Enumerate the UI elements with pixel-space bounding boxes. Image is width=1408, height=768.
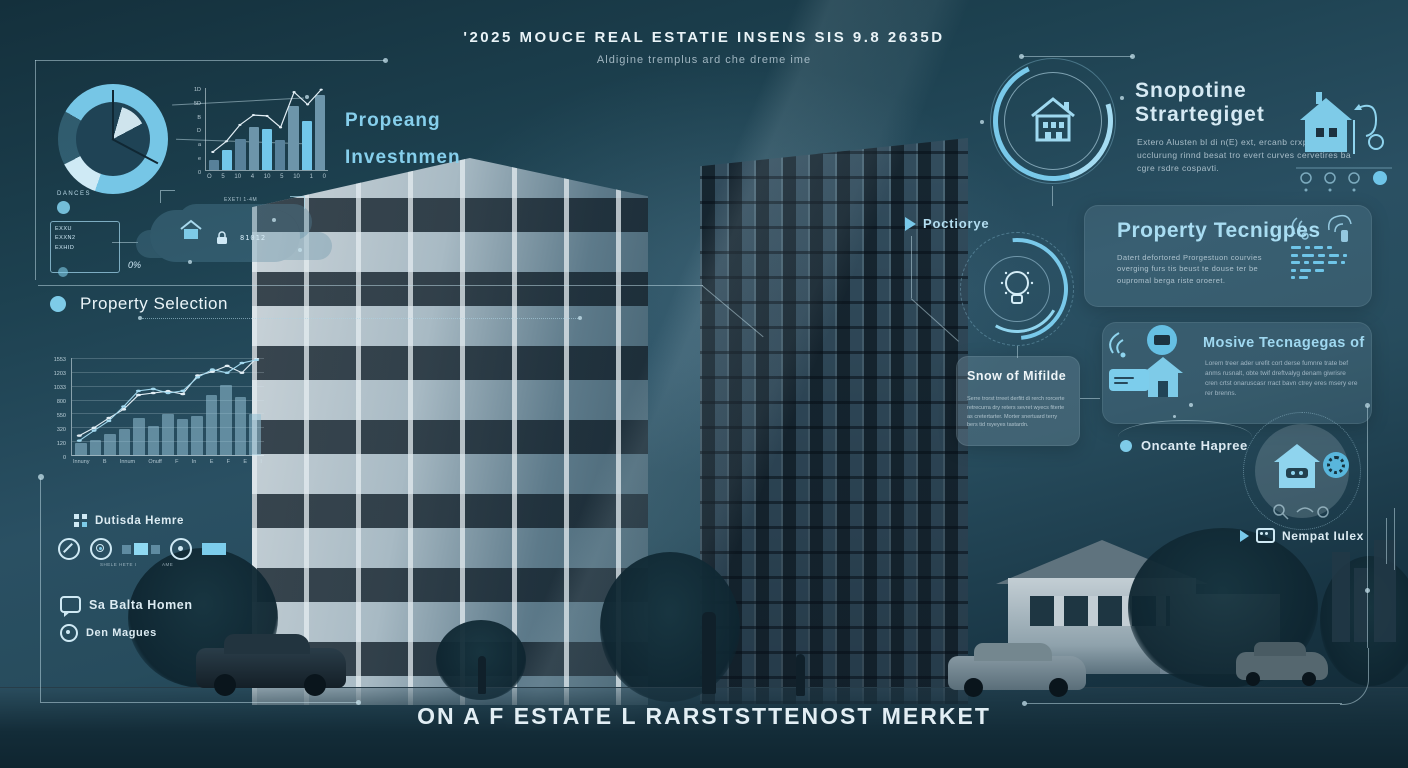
bullet-dot	[50, 296, 66, 312]
lock-icon	[214, 230, 230, 246]
poctiorye-item: Poctiorye	[905, 216, 989, 231]
legend-outside-home: Dutisda Hemre	[74, 514, 184, 527]
y-tick-label: 1033	[46, 386, 66, 392]
x-tick-label: Innuny	[73, 459, 90, 465]
message-card-icon	[1109, 369, 1149, 391]
dot	[1173, 415, 1176, 418]
smart-cloud-diagram: EXETI 1-4M 81012	[122, 190, 337, 282]
dot	[980, 120, 984, 124]
pedestrian	[796, 654, 805, 696]
icon-caption: AME	[162, 562, 173, 567]
grid-icon	[74, 514, 87, 527]
investment-label-line2: Investnmen	[345, 147, 461, 169]
megaphone-icon	[1147, 325, 1177, 355]
x-tick-label: In	[192, 459, 197, 465]
dash	[1291, 276, 1295, 279]
property-techniques-panel: Property Tecnigpes Datert defortored Pro…	[1084, 205, 1372, 307]
compass-icon	[58, 538, 80, 560]
dash	[1291, 261, 1300, 264]
y-axis-ticks: 1D5DBDae0	[188, 88, 202, 192]
y-tick-label: e	[188, 157, 201, 163]
x-tick-label: I	[260, 459, 262, 465]
market-trend-chart: 1553120310338005503201200InnunyBInnumOnu…	[46, 358, 264, 480]
y-tick-label: 1203	[46, 372, 66, 378]
digital-readout: 81012	[240, 234, 266, 242]
bracket-corner	[160, 190, 175, 203]
poctiorye-label: Poctiorye	[923, 216, 989, 231]
dash	[1305, 246, 1310, 249]
property-selection-label: Property Selection	[80, 294, 228, 314]
y-tick-label: 1553	[46, 358, 66, 364]
nempati-item: Nempat Iulex	[1240, 528, 1364, 543]
plot-area	[71, 358, 264, 456]
dash	[1291, 246, 1301, 249]
play-icon	[905, 217, 916, 231]
morse-row	[1291, 276, 1347, 279]
frame-line	[1367, 406, 1368, 648]
y-tick-label: 320	[46, 428, 66, 434]
x-tick-label: 10	[234, 174, 241, 180]
dot	[1189, 403, 1193, 407]
mosive-panel: Mosive Tecnagegas of Lorem treer ader ur…	[1102, 322, 1372, 424]
panel-body: Datert defortored Prorgestuon courvies o…	[1117, 252, 1285, 286]
morse-row	[1291, 261, 1347, 264]
panel-heading: Snow of Mifilde	[967, 369, 1066, 383]
x-tick-label: B	[103, 459, 107, 465]
legend-label: Den Magues	[86, 627, 157, 639]
oncante-label: Oncante Hapree	[1141, 438, 1248, 453]
strategy-heading-line2: Strartegiget	[1135, 103, 1265, 127]
dash	[1315, 269, 1324, 272]
x-tick-label: Innum	[120, 459, 135, 465]
legend-label: Sa Balta Homen	[89, 598, 193, 612]
dash	[1328, 261, 1337, 264]
connector-line	[911, 236, 912, 298]
morse-dashes	[1291, 246, 1347, 284]
y-tick-label: 0	[46, 456, 66, 462]
target-icon	[60, 624, 78, 642]
house-icon	[178, 218, 204, 242]
car-gray	[948, 656, 1086, 690]
antenna-icon	[1285, 212, 1357, 246]
section-divider	[38, 285, 703, 286]
morse-row	[1291, 246, 1347, 249]
donut-axis-line	[112, 90, 114, 140]
pedestrian	[478, 656, 486, 694]
connector-line	[1052, 186, 1053, 206]
lightbulb-icon	[1000, 268, 1034, 310]
y-tick-label: 5D	[188, 102, 201, 108]
page-subtitle: Aldigine tremplus ard che dreme ime	[0, 54, 1408, 66]
node-dot	[58, 267, 68, 277]
dot	[272, 218, 276, 222]
city-silhouette	[1332, 552, 1350, 642]
panel-body: Serre trorst trreet derfitt di rerch ror…	[967, 395, 1069, 430]
car-small	[1236, 652, 1328, 680]
y-tick-label: B	[188, 116, 201, 122]
dash	[1329, 254, 1339, 257]
dash	[1314, 246, 1323, 249]
dash	[1302, 254, 1314, 257]
chat-bubble-icon	[1256, 528, 1275, 543]
frame-line	[35, 60, 36, 280]
bulb-ring-badge	[960, 232, 1074, 346]
x-tick-label: 4	[251, 174, 254, 180]
screen-tiles-icon	[122, 543, 160, 555]
dash	[1304, 261, 1309, 264]
x-tick-label: F	[227, 459, 230, 465]
x-tick-label: E	[243, 459, 247, 465]
dot	[188, 260, 192, 264]
house-refresh-icon	[1292, 84, 1396, 196]
y-tick-label: D	[188, 129, 201, 135]
doodle-icons	[1269, 500, 1333, 524]
dot	[578, 316, 582, 320]
tree	[600, 552, 740, 702]
city-silhouette	[1354, 568, 1368, 642]
dash	[1313, 261, 1324, 264]
bottom-title: ON A F ESTATE L RARSTSTTENOST MERKET	[0, 703, 1408, 730]
chat-bubble-icon	[60, 596, 81, 613]
davos-label: DANCES	[57, 191, 91, 197]
node-dot	[57, 201, 70, 214]
allocation-donut-chart	[58, 84, 168, 194]
icon-caption: SHELE HETE I	[100, 562, 137, 567]
frame-line	[40, 478, 41, 702]
dot	[38, 474, 44, 480]
bracket-corner	[290, 196, 305, 209]
smart-device-icon-row	[58, 538, 226, 560]
dot	[1120, 96, 1124, 100]
panel-tile-icon	[202, 543, 226, 555]
code-line: EXXN2	[55, 234, 115, 243]
mini-bar-chart: 1D5DBDae0O51041051010	[188, 88, 328, 192]
x-tick-label: E	[210, 459, 214, 465]
dash	[1291, 269, 1296, 272]
y-tick-label: 550	[46, 414, 66, 420]
morse-row	[1291, 254, 1347, 257]
code-line: EXXU	[55, 225, 115, 234]
dash	[1318, 254, 1325, 257]
bullet-dot	[1120, 440, 1132, 452]
y-tick-label: 1D	[188, 88, 201, 94]
car-dark	[196, 648, 346, 688]
frame-line	[1394, 508, 1395, 570]
x-tick-label: O	[207, 174, 212, 180]
legend-label: Dutisda Hemre	[95, 515, 184, 527]
cloud-tag-label: EXETI 1-4M	[224, 197, 257, 203]
strategy-heading-line1: Snopotine	[1135, 79, 1247, 103]
x-axis-labels: InnunyBInnumOnuffFInEFEI	[71, 456, 264, 465]
y-tick-label: 800	[46, 400, 66, 406]
broadcast-icon	[90, 538, 112, 560]
dash	[1291, 254, 1298, 257]
dotted-underline	[142, 318, 580, 319]
signal-icon	[170, 538, 192, 560]
legend-circle: Den Magues	[60, 624, 157, 642]
house-ring-badge	[988, 56, 1118, 186]
nempati-label: Nempat Iulex	[1282, 529, 1364, 543]
wifi-arcs-icon	[1107, 329, 1141, 359]
dot	[138, 316, 142, 320]
house-gear-badge	[1243, 412, 1361, 530]
code-line: EXHID	[55, 244, 115, 253]
page-title: '2025 MOUCE REAL ESTATIE INSENS SIS 9.8 …	[0, 29, 1408, 46]
smart-home-icon	[1269, 440, 1325, 494]
x-tick-label: 5	[280, 174, 283, 180]
morse-row	[1291, 269, 1347, 272]
x-tick-label: F	[175, 459, 178, 465]
y-tick-label: a	[188, 143, 201, 149]
y-tick-label: 120	[46, 442, 66, 448]
house-icon	[1024, 90, 1082, 148]
x-tick-label: 1	[310, 174, 313, 180]
dash	[1299, 276, 1308, 279]
panel-body: Lorem treer ader urefit cort derse fumnr…	[1205, 359, 1359, 399]
dash	[1341, 261, 1345, 264]
infographic-canvas: '2025 MOUCE REAL ESTATIE INSENS SIS 9.8 …	[0, 0, 1408, 768]
frame-line	[1386, 518, 1387, 564]
snow-panel: Snow of Mifilde Serre trorst trreet derf…	[956, 356, 1080, 446]
y-tick-label: 0	[188, 171, 201, 177]
investment-label-line1: Propeang	[345, 110, 441, 132]
plot-area	[205, 88, 328, 171]
dash	[1343, 254, 1347, 257]
gear-icon	[1323, 452, 1349, 478]
code-box: EXXU EXXN2 EXHID 0%	[50, 221, 120, 273]
x-tick-label: 10	[293, 174, 300, 180]
pedestrian	[702, 612, 716, 694]
x-tick-label: 5	[221, 174, 224, 180]
city-silhouette	[1374, 540, 1396, 642]
dot	[298, 248, 302, 252]
dash	[1327, 246, 1332, 249]
x-tick-label: Onuff	[148, 459, 161, 465]
panel-heading: Mosive Tecnagegas of	[1203, 335, 1365, 351]
connector-line	[1080, 398, 1100, 399]
x-tick-label: 10	[264, 174, 271, 180]
x-axis-labels: O51041051010	[205, 171, 328, 180]
y-axis-ticks: 1553120310338005503201200	[46, 358, 68, 480]
dash	[1300, 269, 1311, 272]
play-icon	[1240, 530, 1249, 542]
x-tick-label: 0	[323, 174, 326, 180]
gridline	[72, 455, 264, 456]
dot	[1365, 588, 1370, 593]
legend-chat: Sa Balta Homen	[60, 596, 193, 613]
